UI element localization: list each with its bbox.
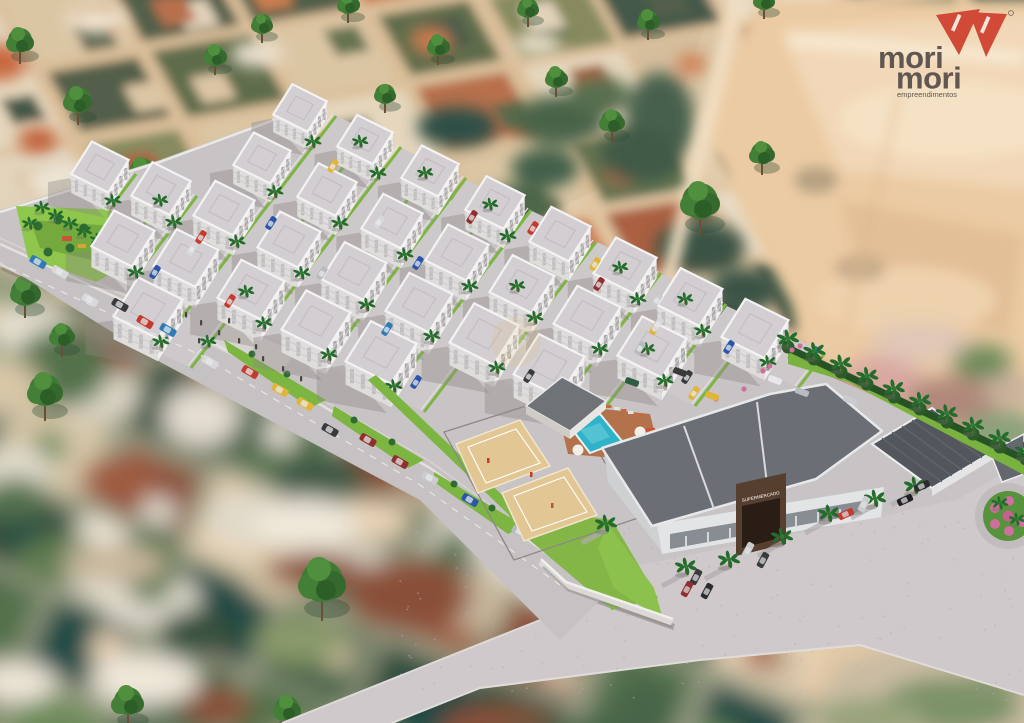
svg-text:empreendimentos: empreendimentos [897,90,957,99]
